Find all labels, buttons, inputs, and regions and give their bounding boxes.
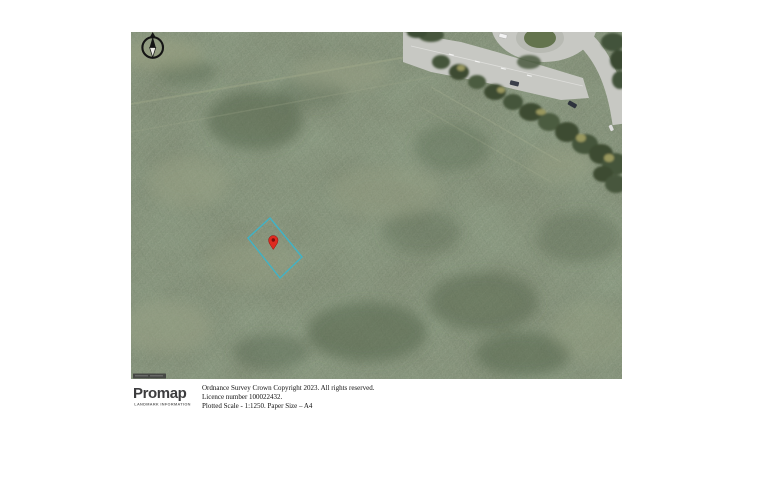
imagery-watermark bbox=[133, 374, 166, 379]
promap-logo-text: Promap bbox=[133, 386, 202, 401]
copyright-block: Ordnance Survey Crown Copyright 2023. Al… bbox=[202, 384, 374, 412]
footer: Promap LANDMARK INFORMATION Ordnance Sur… bbox=[133, 383, 374, 412]
copyright-line: Plotted Scale - 1:1250. Paper Size – A4 bbox=[202, 402, 374, 411]
promap-logo: Promap LANDMARK INFORMATION bbox=[133, 383, 202, 409]
copyright-line: Licence number 100022432. bbox=[202, 393, 374, 402]
promap-tagline: LANDMARK INFORMATION bbox=[133, 403, 177, 407]
promap-tagline-text: LANDMARK INFORMATION bbox=[134, 403, 190, 407]
aerial-map bbox=[131, 32, 622, 379]
copyright-line: Ordnance Survey Crown Copyright 2023. Al… bbox=[202, 384, 374, 393]
aerial-imagery bbox=[131, 32, 622, 379]
